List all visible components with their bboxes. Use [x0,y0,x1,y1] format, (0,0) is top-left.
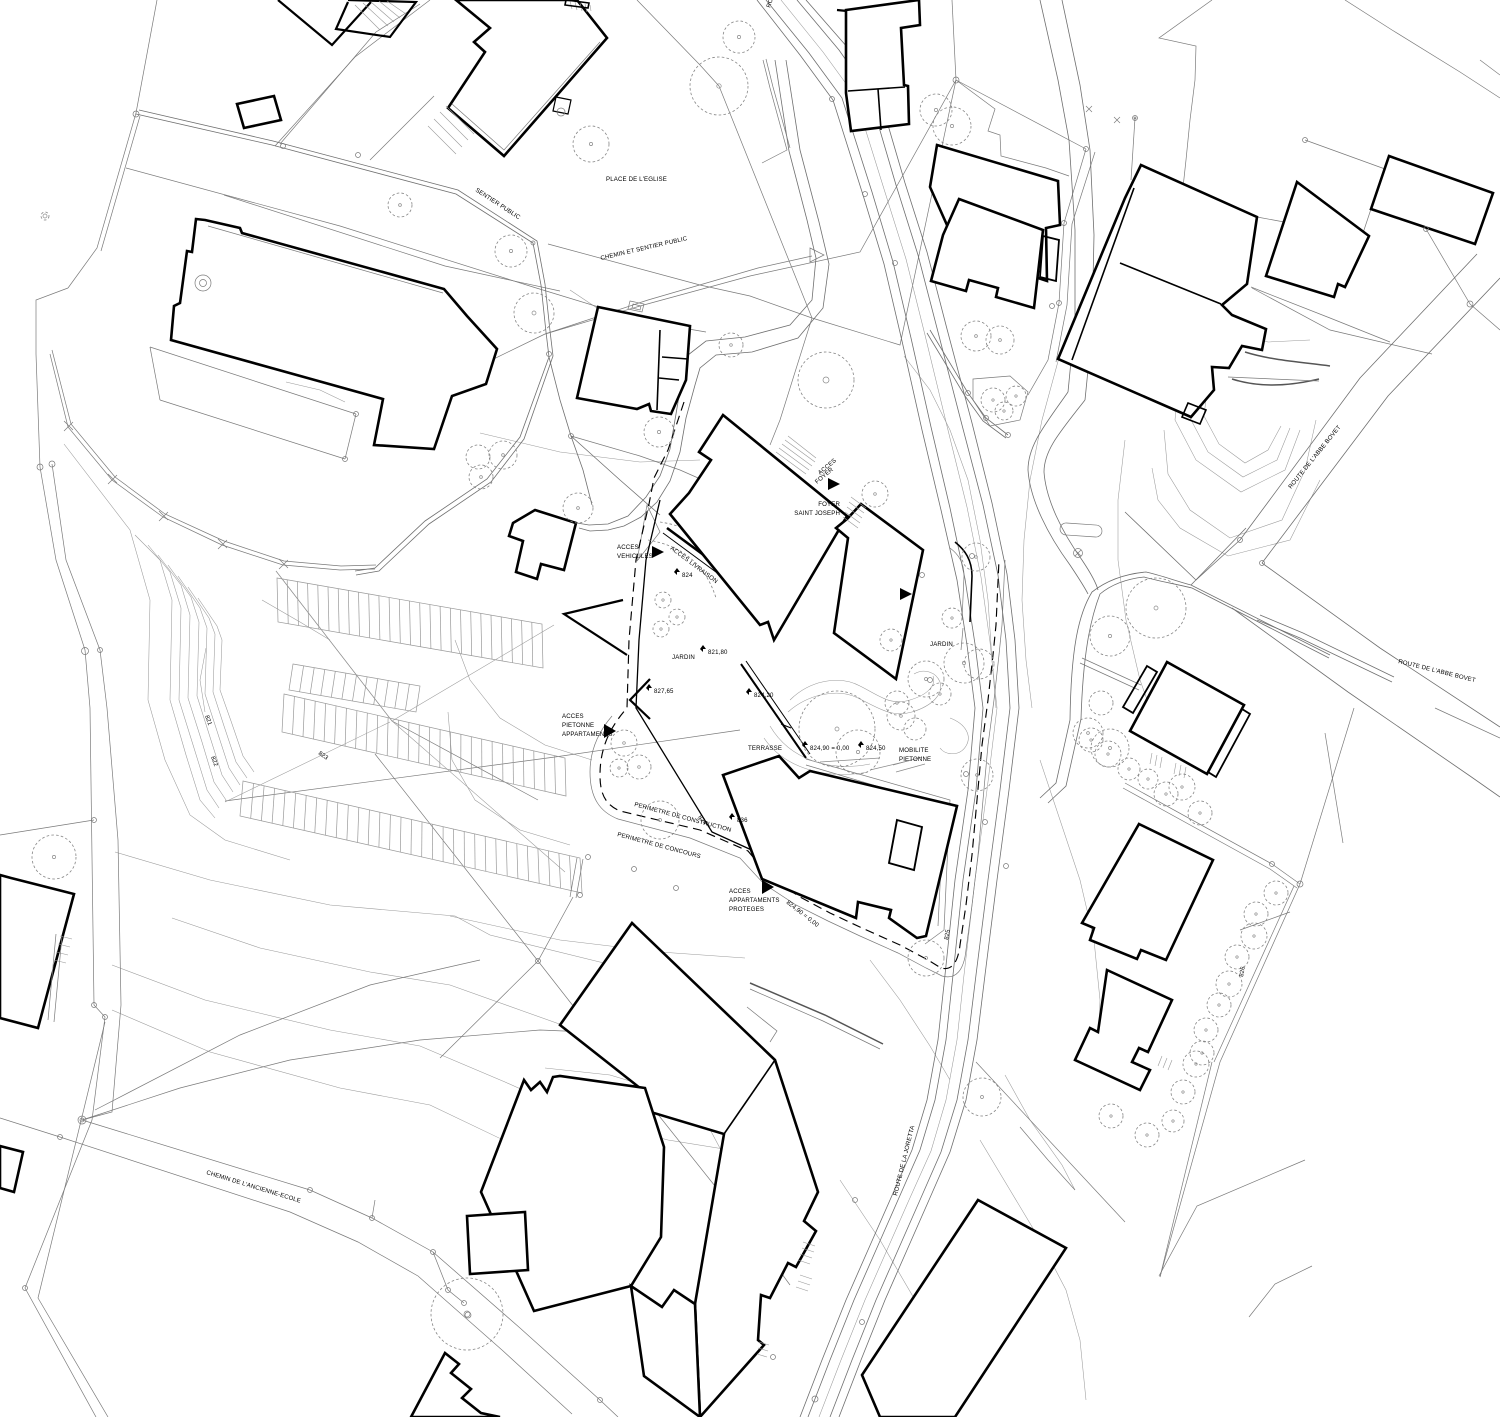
svg-text:PROTEGES: PROTEGES [729,906,764,913]
svg-text:APPARTAMENTS: APPARTAMENTS [729,897,780,904]
svg-text:JARDIN: JARDIN [672,654,695,661]
svg-text:PIETONNE: PIETONNE [562,722,594,729]
svg-text:ACCES: ACCES [617,544,639,551]
svg-text:PIETONNE: PIETONNE [899,756,931,763]
svg-text:VEHICULES: VEHICULES [617,553,653,560]
svg-text:MOBILITE: MOBILITE [899,747,929,754]
svg-text:824: 824 [682,572,693,579]
svg-text:827,65: 827,65 [654,688,674,695]
svg-text:821,80: 821,80 [708,649,728,656]
svg-text:FOYER: FOYER [818,501,840,508]
svg-text:TERRASSE: TERRASSE [748,745,782,752]
svg-text:ACCES: ACCES [562,713,584,720]
svg-text:ACCES: ACCES [729,888,751,895]
svg-text:JARDIN: JARDIN [930,641,953,648]
svg-text:SAINT JOSEPH: SAINT JOSEPH [794,510,840,517]
svg-text:824,20: 824,20 [754,692,774,699]
svg-text:824,50: 824,50 [866,745,886,752]
svg-text:APPARTAMENTS: APPARTAMENTS [562,731,613,738]
svg-text:836: 836 [737,817,748,824]
svg-text:PLACE DE L'EGLISE: PLACE DE L'EGLISE [606,176,667,183]
svg-text:824,90 = 0,00: 824,90 = 0,00 [810,745,850,752]
